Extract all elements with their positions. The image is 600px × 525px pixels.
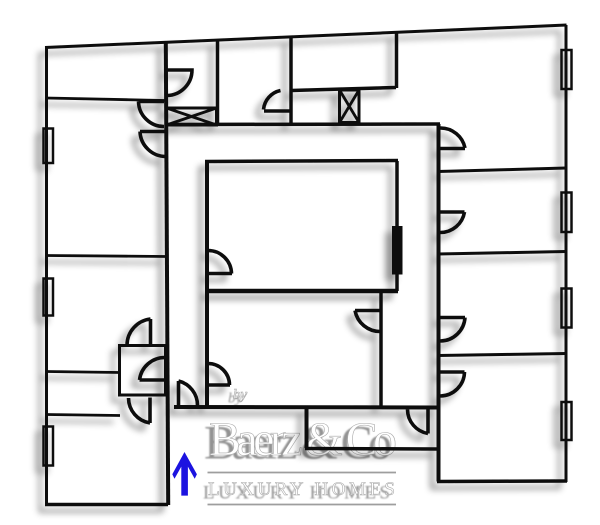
svg-text:by: by [233, 387, 248, 403]
svg-text:Baerz & Co: Baerz & Co [209, 413, 397, 466]
